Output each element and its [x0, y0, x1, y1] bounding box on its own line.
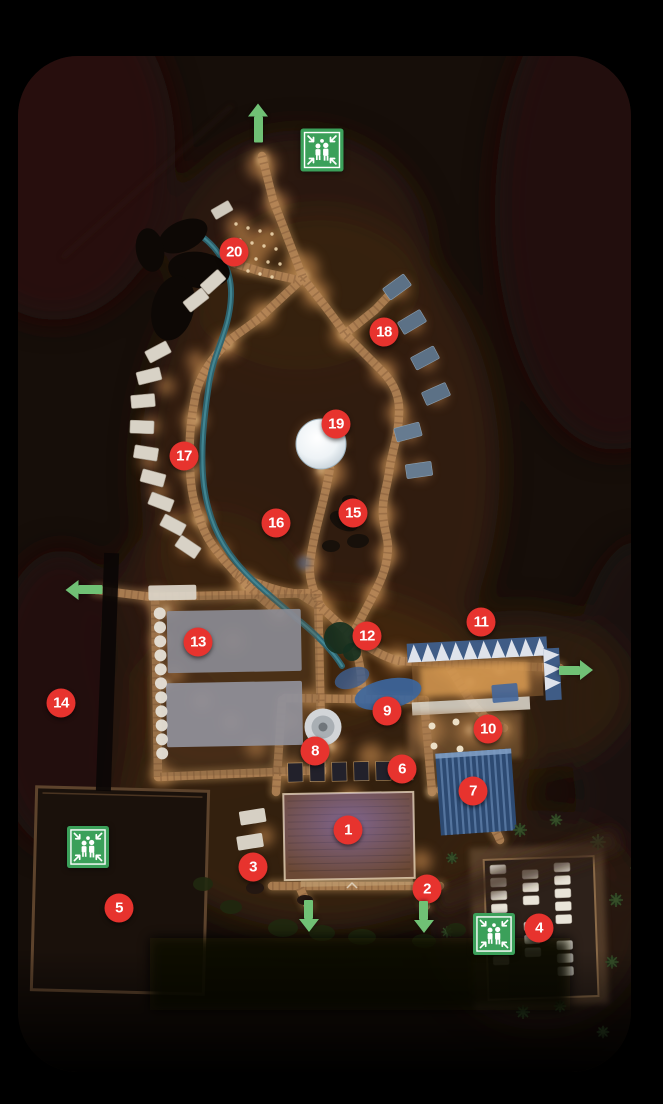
map-marker-8: 8	[301, 737, 330, 766]
map-marker-17: 17	[170, 442, 199, 471]
assembly-point-icon	[473, 913, 515, 955]
map-marker-9: 9	[373, 697, 402, 726]
map-marker-19: 19	[322, 410, 351, 439]
map-marker-18: 18	[370, 318, 399, 347]
map-marker-16: 16	[262, 509, 291, 538]
map-marker-14: 14	[47, 689, 76, 718]
evacuation-map: 1234567891011121314151617181920	[0, 0, 663, 1104]
map-marker-20: 20	[220, 238, 249, 267]
map-marker-2: 2	[413, 875, 442, 904]
arrow-down-icon	[414, 901, 434, 933]
assembly-point-symbol	[473, 913, 515, 955]
assembly-point-symbol	[301, 129, 344, 172]
map-marker-12: 12	[353, 622, 382, 651]
assembly-point-icon	[301, 129, 344, 172]
map-marker-3: 3	[239, 853, 268, 882]
arrow-up-icon	[248, 104, 268, 143]
arrow-left-icon	[66, 580, 103, 600]
map-marker-11: 11	[467, 608, 496, 637]
map-marker-6: 6	[388, 755, 417, 784]
map-marker-1: 1	[334, 816, 363, 845]
map-marker-10: 10	[474, 715, 503, 744]
map-marker-4: 4	[525, 914, 554, 943]
map-marker-7: 7	[459, 777, 488, 806]
marker-layer: 1234567891011121314151617181920	[0, 0, 663, 1104]
map-marker-13: 13	[184, 628, 213, 657]
assembly-point-symbol	[67, 826, 109, 868]
map-marker-15: 15	[339, 499, 368, 528]
assembly-point-icon	[67, 826, 109, 868]
arrow-down-icon	[299, 900, 319, 932]
arrow-right-icon	[559, 660, 593, 680]
map-marker-5: 5	[105, 894, 134, 923]
